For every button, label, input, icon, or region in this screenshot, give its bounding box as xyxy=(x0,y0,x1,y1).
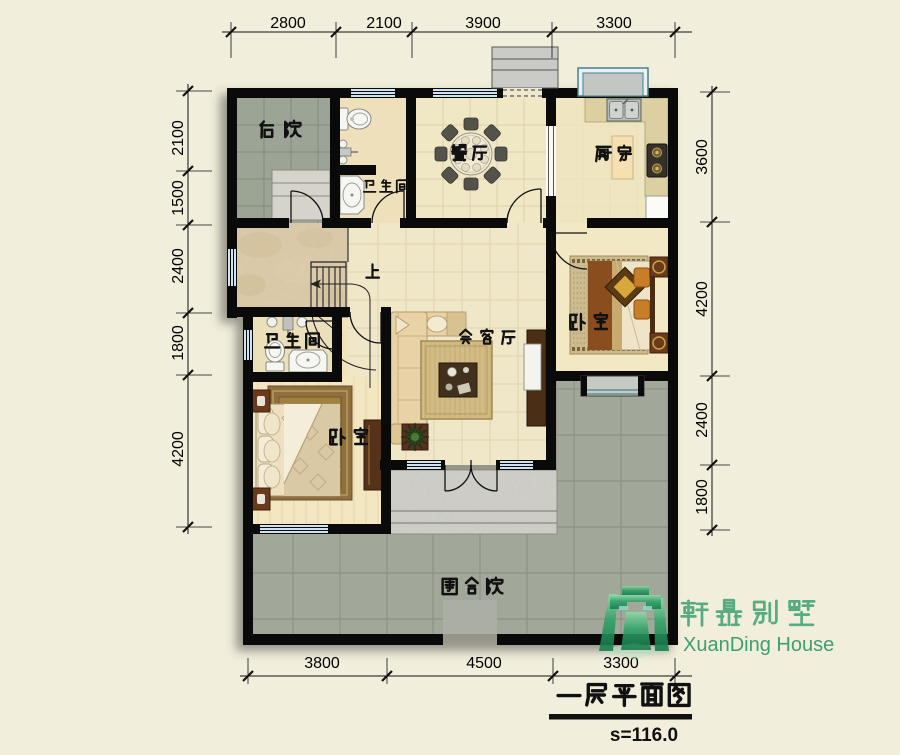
svg-text:3300: 3300 xyxy=(596,15,632,32)
svg-text:3800: 3800 xyxy=(304,655,340,672)
svg-text:2800: 2800 xyxy=(270,15,306,32)
svg-text:s=116.0: s=116.0 xyxy=(610,725,678,746)
svg-text:2400: 2400 xyxy=(170,248,187,284)
svg-text:XuanDing House: XuanDing House xyxy=(683,634,834,656)
svg-text:3600: 3600 xyxy=(694,139,711,175)
svg-text:3900: 3900 xyxy=(465,15,501,32)
svg-text:1800: 1800 xyxy=(170,325,187,361)
svg-text:4200: 4200 xyxy=(694,281,711,317)
svg-text:2100: 2100 xyxy=(170,120,187,156)
svg-text:1800: 1800 xyxy=(694,479,711,515)
svg-text:4500: 4500 xyxy=(466,655,502,672)
svg-text:4200: 4200 xyxy=(170,431,187,467)
svg-text:2100: 2100 xyxy=(366,15,402,32)
svg-text:1500: 1500 xyxy=(170,180,187,216)
svg-text:2400: 2400 xyxy=(694,402,711,438)
